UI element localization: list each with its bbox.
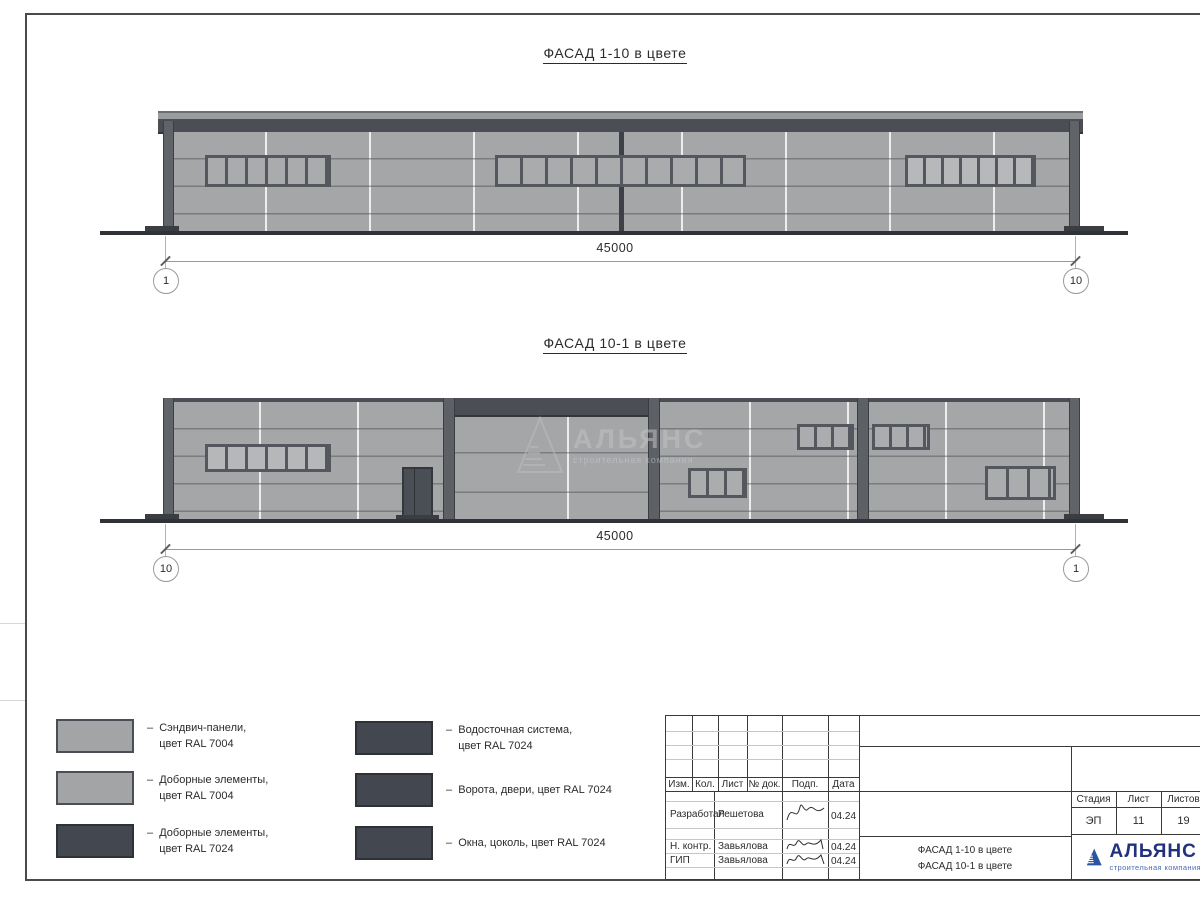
swatch-gates-doors — [355, 773, 433, 807]
window-band — [205, 155, 331, 187]
company-logo: АЛЬЯНС строительная компания — [1071, 834, 1200, 880]
window — [872, 424, 930, 450]
sheet-number: 11 — [1116, 815, 1161, 827]
window-band — [905, 155, 1036, 187]
swatch-drainage-system — [355, 721, 433, 755]
company-watermark: АЛЬЯНС строительная компания — [515, 415, 707, 475]
rev-header-izm: Изм. — [666, 779, 692, 790]
corner-trim-left — [163, 398, 174, 519]
watermark-name: АЛЬЯНС — [573, 426, 707, 453]
legend-item: – Доборные элементы, цвет RAL 7004 — [56, 771, 268, 805]
binding-mark — [0, 623, 25, 624]
stage-value: ЭП — [1071, 815, 1116, 827]
swatch-sandwich-panels — [56, 719, 134, 753]
legend-label: – Окна, цоколь, цвет RAL 7024 — [446, 835, 606, 852]
sign-name: Завьялова — [718, 841, 768, 852]
logo-triangle-icon — [1085, 837, 1103, 877]
sign-name: Завьялова — [718, 855, 768, 866]
sign-date: 04.24 — [828, 856, 859, 867]
rev-header-podp: Подп. — [782, 779, 828, 790]
legend-label: – Ворота, двери, цвет RAL 7024 — [446, 782, 612, 799]
window — [688, 468, 747, 498]
swatch-windows-plinth — [355, 826, 433, 860]
legend-label: – Доборные элементы, цвет RAL 7024 — [147, 825, 268, 858]
rev-header-data: Дата — [828, 779, 859, 790]
sign-date: 04.24 — [828, 842, 859, 853]
sheets-total-header: Листов — [1161, 794, 1200, 805]
legend-label: – Сэндвич-панели, цвет RAL 7004 — [147, 720, 246, 753]
frame-top — [25, 13, 1200, 15]
pilaster — [857, 398, 869, 519]
sign-date: 04.24 — [828, 811, 859, 822]
axis-marker-1: 1 — [1063, 556, 1089, 582]
logo-tagline: строительная компания — [1110, 863, 1200, 872]
ground-line — [100, 519, 1128, 523]
legend-item: – Окна, цоколь, цвет RAL 7024 — [355, 826, 606, 860]
sign-name: Решетова — [718, 809, 764, 820]
corner-trim-right — [1069, 121, 1080, 231]
legend-label: – Доборные элементы, цвет RAL 7004 — [147, 772, 268, 805]
frame-left — [25, 13, 27, 881]
window-band — [495, 155, 746, 187]
logo-name: АЛЬЯНС — [1110, 842, 1200, 861]
drawing-sheet: ФАСАД 1-10 в цвете 45000 1 10 ФАСАД 10-1… — [0, 0, 1200, 900]
legend-item: – Водосточная система, цвет RAL 7024 — [355, 721, 572, 755]
sheets-total: 19 — [1161, 815, 1200, 827]
facade-10-1-title-wrap: ФАСАД 10-1 в цвете — [100, 335, 1130, 354]
rev-header-kol: Кол. — [692, 779, 718, 790]
axis-marker-10: 10 — [153, 556, 179, 582]
legend-label: – Водосточная система, цвет RAL 7024 — [446, 722, 572, 755]
facade-1-10-title-wrap: ФАСАД 1-10 в цвете — [100, 45, 1130, 64]
dimension-line — [165, 261, 1075, 262]
legend-item: – Доборные элементы, цвет RAL 7024 — [56, 824, 268, 858]
title-block: Изм. Кол. Лист № док. Подп. Дата Разрабо… — [665, 715, 1200, 880]
watermark-triangle-icon — [515, 415, 565, 475]
legend-item: – Ворота, двери, цвет RAL 7024 — [355, 773, 612, 807]
rev-header-ndok: № док. — [747, 779, 782, 790]
axis-marker-10: 10 — [1063, 268, 1089, 294]
legend-item: – Сэндвич-панели, цвет RAL 7004 — [56, 719, 246, 753]
window-band — [205, 444, 331, 472]
sign-role: Н. контр. — [670, 841, 711, 852]
doc-name: ФАСАД 1-10 в цвете ФАСАД 10-1 в цвете — [859, 843, 1071, 875]
ground-line — [100, 231, 1128, 235]
swatch-trim-elements-7024 — [56, 824, 134, 858]
dimension-label: 45000 — [100, 529, 1130, 543]
window — [797, 424, 854, 450]
entrance-door — [402, 467, 433, 517]
dimension-label: 45000 — [100, 241, 1130, 255]
pilaster — [443, 398, 455, 519]
dimension-line — [165, 549, 1075, 550]
signature-razrabotal — [784, 798, 826, 826]
axis-marker-1: 1 — [153, 268, 179, 294]
watermark-tagline: строительная компания — [573, 455, 707, 465]
signature-gip — [784, 851, 826, 868]
corner-trim-left — [163, 121, 174, 231]
facade-1-10-title: ФАСАД 1-10 в цвете — [543, 45, 686, 64]
sign-role: Разработал — [670, 809, 724, 820]
sign-role: ГИП — [670, 855, 690, 866]
sheet-header: Лист — [1116, 794, 1161, 805]
rev-header-list: Лист — [718, 779, 747, 790]
facade-10-1-title: ФАСАД 10-1 в цвете — [543, 335, 686, 354]
window — [985, 466, 1056, 500]
corner-trim-right — [1069, 398, 1080, 519]
binding-mark — [0, 700, 25, 701]
stage-header: Стадия — [1071, 794, 1116, 805]
swatch-trim-elements-7004 — [56, 771, 134, 805]
